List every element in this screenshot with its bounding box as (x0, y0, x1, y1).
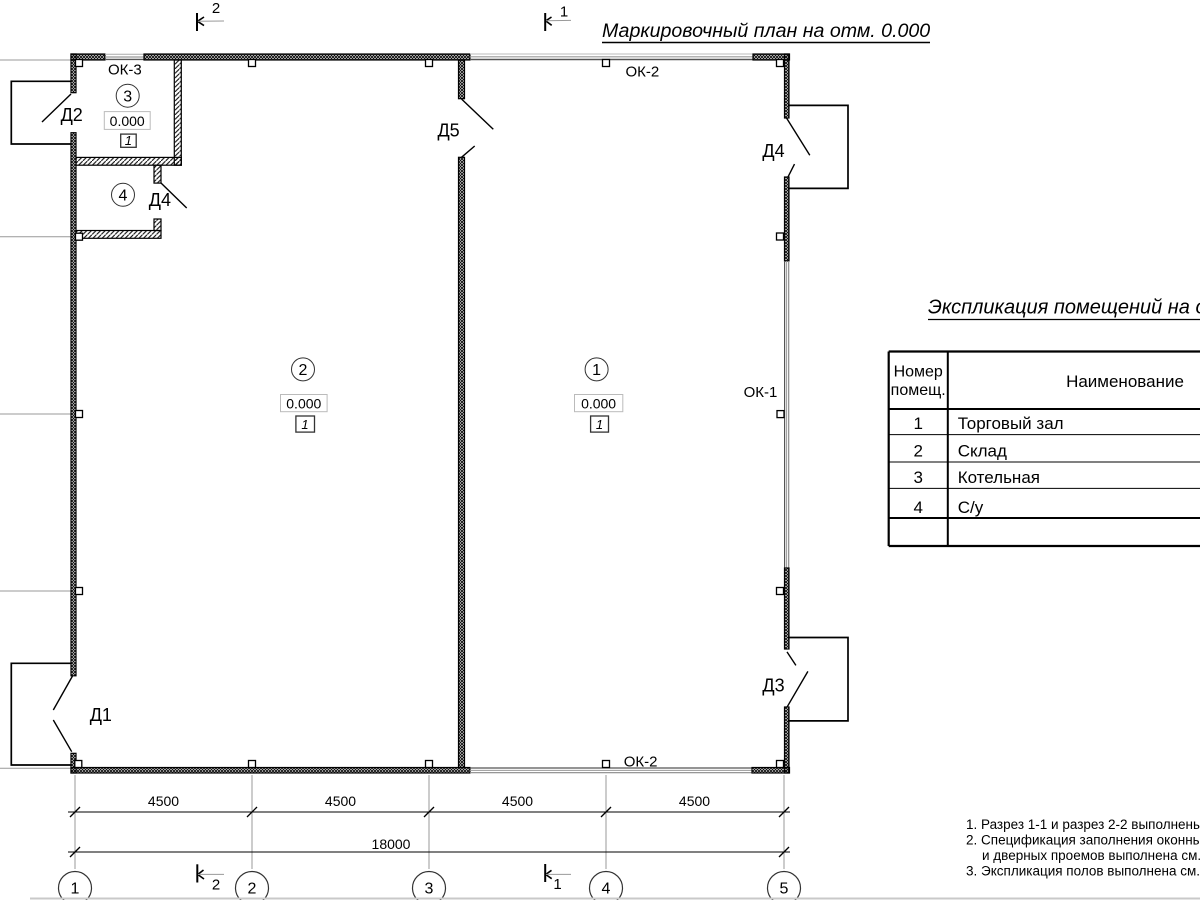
svg-text:0.000: 0.000 (110, 113, 145, 129)
svg-text:1: 1 (592, 362, 601, 379)
svg-text:2: 2 (248, 881, 257, 898)
svg-text:18000: 18000 (372, 836, 411, 852)
svg-text:5: 5 (780, 881, 789, 898)
svg-text:Маркировочный план на отм. 0.0: Маркировочный план на отм. 0.000 (602, 20, 930, 42)
svg-text:1: 1 (913, 414, 922, 433)
svg-text:и дверных проемов выполнена см: и дверных проемов выполнена см. (982, 848, 1200, 863)
svg-text:Д2: Д2 (61, 105, 83, 125)
svg-text:Д4: Д4 (149, 190, 171, 210)
svg-text:4500: 4500 (502, 793, 533, 809)
svg-text:0.000: 0.000 (286, 396, 321, 412)
svg-text:Номер: Номер (894, 364, 943, 381)
svg-text:2: 2 (212, 0, 220, 17)
svg-text:С/у: С/у (958, 498, 984, 517)
svg-text:Экспликация помещений на отм.: Экспликация помещений на отм. 0.000 (928, 297, 1200, 319)
svg-text:1: 1 (71, 881, 80, 898)
svg-text:Д5: Д5 (437, 121, 459, 141)
svg-text:Наименование: Наименование (1066, 372, 1184, 391)
svg-text:Д3: Д3 (762, 676, 784, 696)
svg-text:1: 1 (596, 417, 603, 432)
svg-text:2: 2 (212, 877, 220, 894)
svg-text:4500: 4500 (325, 793, 356, 809)
svg-text:0.000: 0.000 (581, 396, 616, 412)
svg-text:1: 1 (553, 876, 561, 893)
svg-text:ОК-1: ОК-1 (744, 384, 778, 401)
svg-text:помещ.: помещ. (891, 382, 946, 399)
svg-text:ОК-3: ОК-3 (108, 62, 142, 79)
svg-text:3: 3 (425, 881, 434, 898)
svg-text:ОК-2: ОК-2 (624, 754, 658, 771)
svg-text:4: 4 (913, 498, 922, 517)
svg-text:4500: 4500 (148, 793, 179, 809)
svg-text:Д4: Д4 (762, 141, 784, 161)
svg-text:1: 1 (560, 4, 568, 21)
svg-text:3: 3 (913, 468, 922, 487)
svg-text:3. Экспликация полов выполнена: 3. Экспликация полов выполнена см. (966, 864, 1200, 879)
svg-text:ОК-2: ОК-2 (626, 64, 660, 81)
svg-text:1: 1 (301, 417, 308, 432)
svg-text:3: 3 (123, 89, 132, 106)
svg-text:4: 4 (119, 188, 128, 205)
svg-text:Д1: Д1 (90, 705, 112, 725)
svg-text:2. Спецификация заполнения око: 2. Спецификация заполнения оконных (966, 833, 1200, 848)
svg-text:1: 1 (125, 133, 132, 148)
svg-text:4500: 4500 (679, 793, 710, 809)
svg-text:1. Разрез 1-1 и разрез 2-2 вып: 1. Разрез 1-1 и разрез 2-2 выполнены (966, 817, 1200, 832)
svg-text:4: 4 (602, 881, 611, 898)
svg-text:Склад: Склад (958, 442, 1007, 461)
svg-text:Котельная: Котельная (958, 468, 1040, 487)
svg-text:Торговый зал: Торговый зал (958, 414, 1064, 433)
svg-text:2: 2 (913, 442, 922, 461)
svg-text:2: 2 (299, 362, 308, 379)
